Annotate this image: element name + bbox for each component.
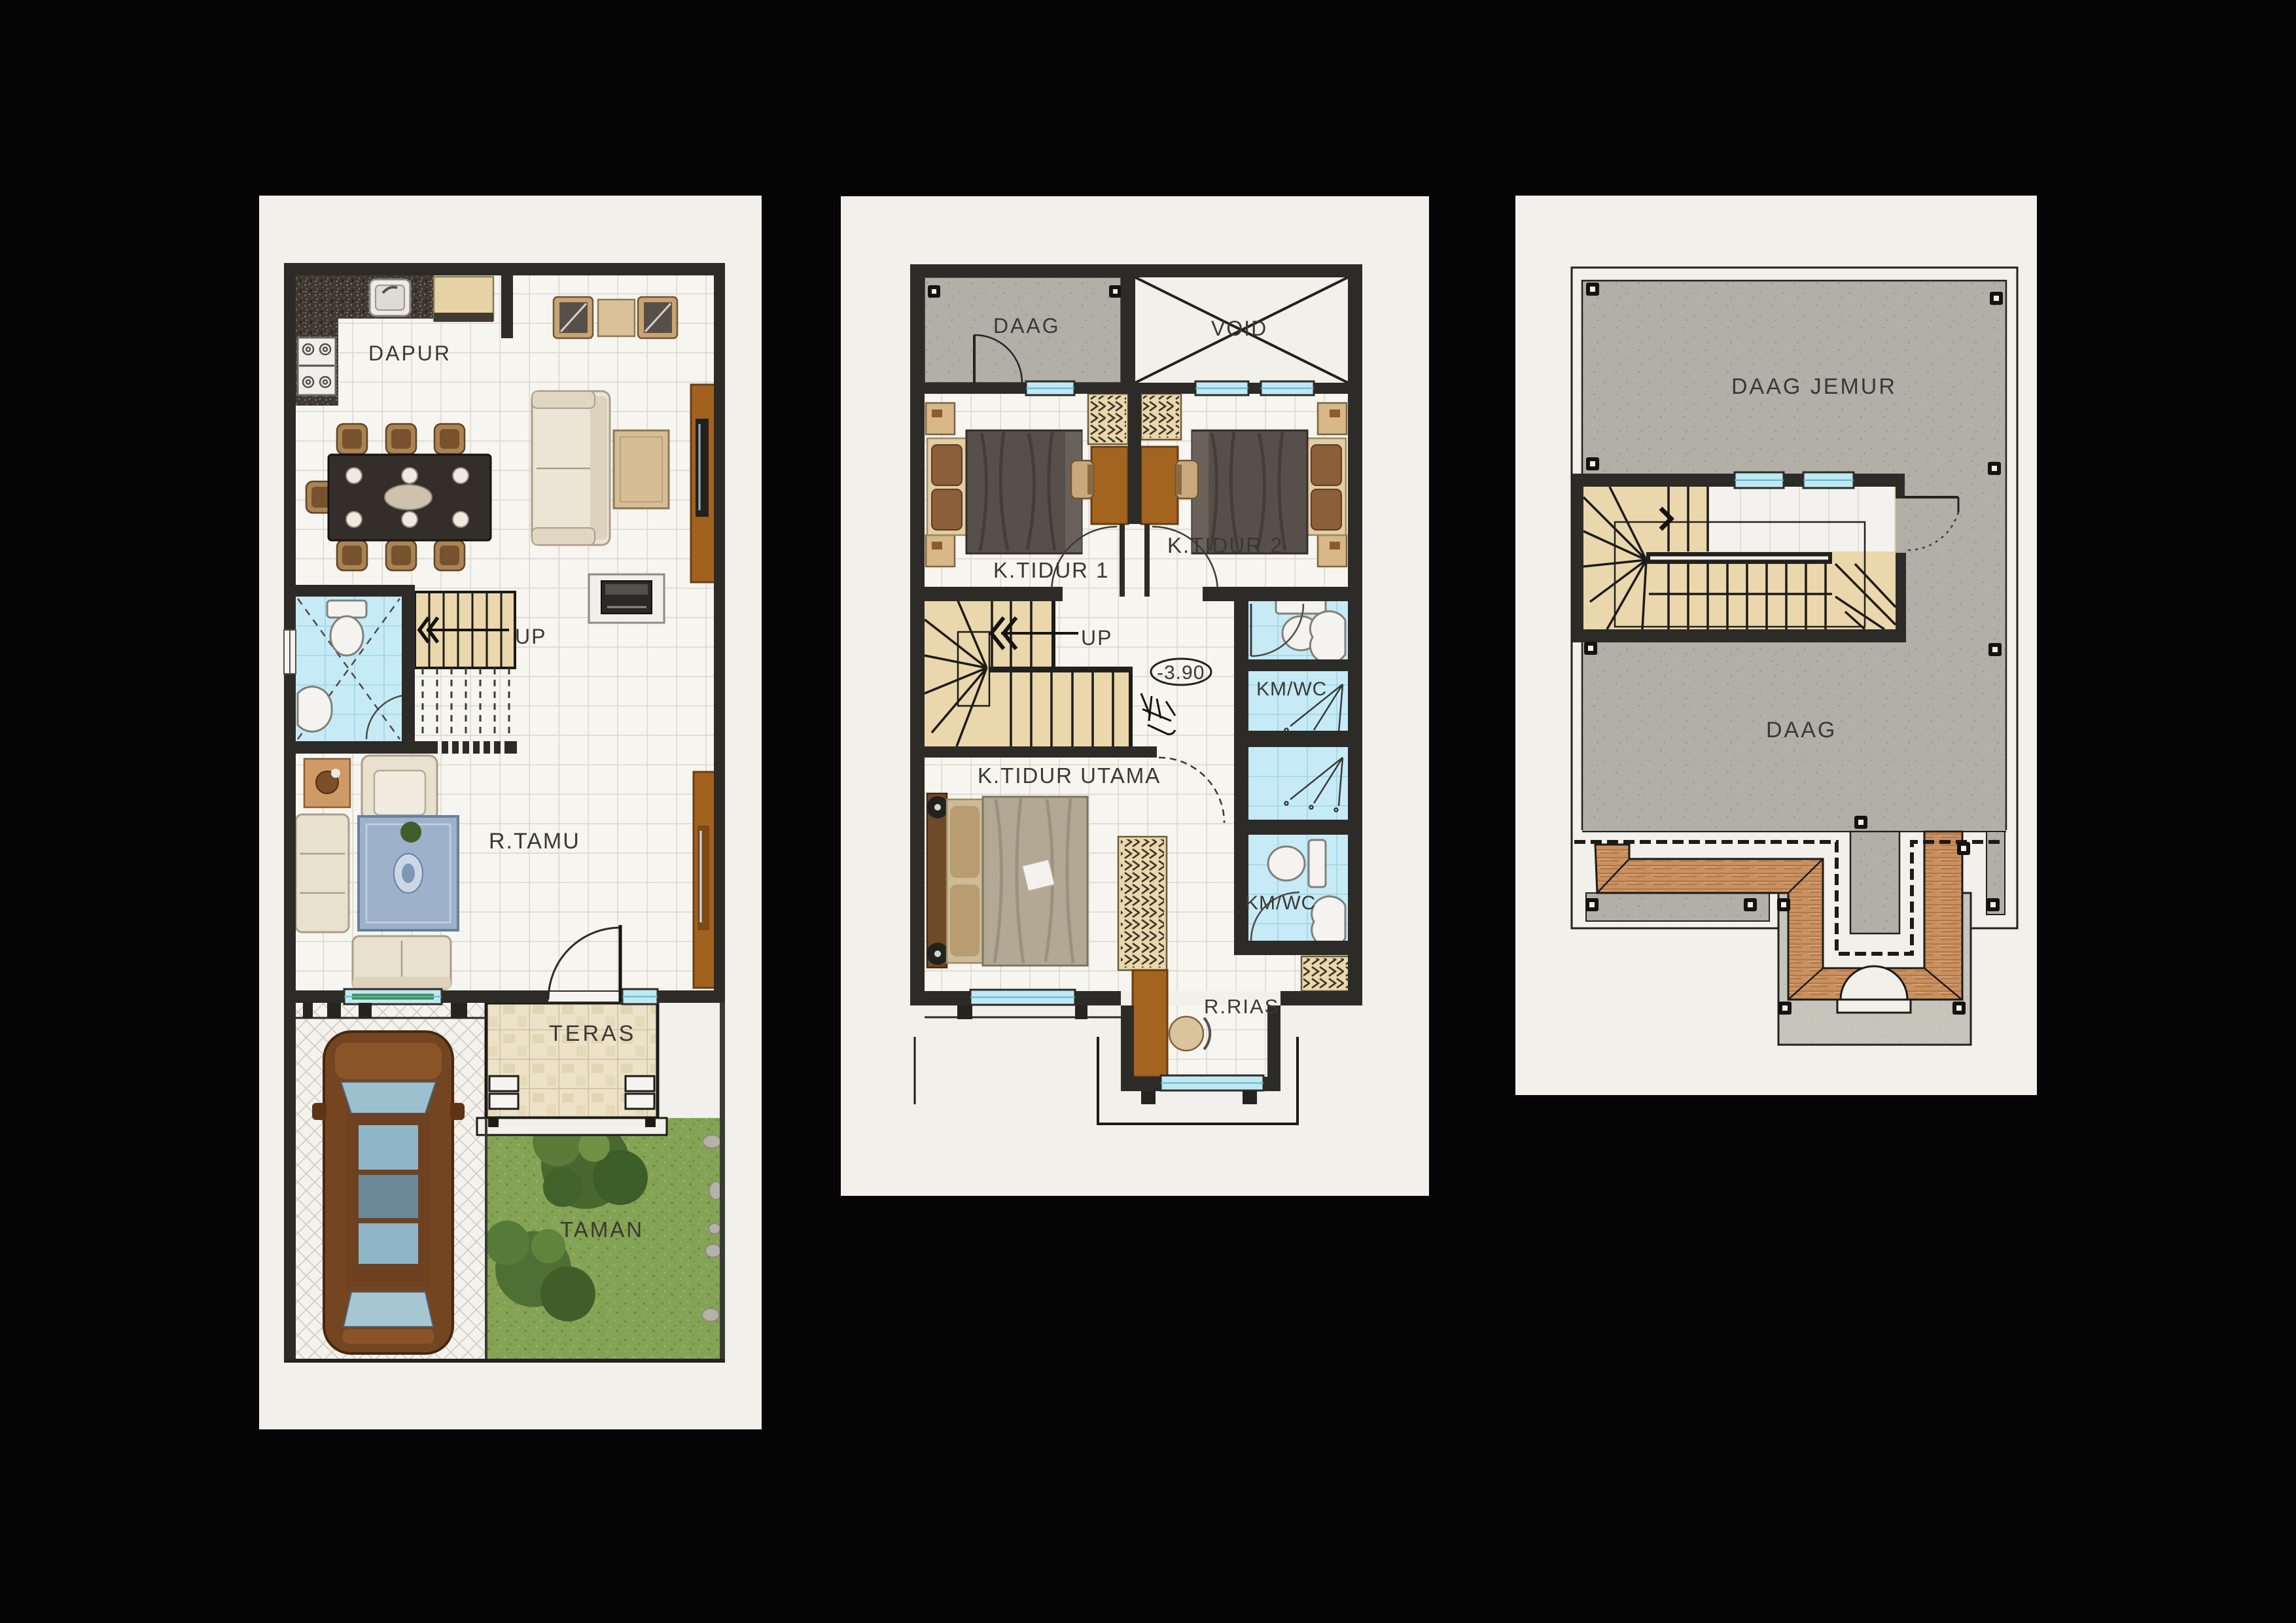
svg-text:DAAG JEMUR: DAAG JEMUR xyxy=(1731,374,1897,399)
svg-text:K.TIDUR UTAMA: K.TIDUR UTAMA xyxy=(978,763,1161,788)
svg-text:K.TIDUR 2: K.TIDUR 2 xyxy=(1167,533,1284,557)
svg-text:DAPUR: DAPUR xyxy=(368,341,451,365)
svg-text:TAMAN: TAMAN xyxy=(560,1217,644,1242)
svg-text:KM/WC: KM/WC xyxy=(1245,892,1316,914)
svg-text:R.TAMU: R.TAMU xyxy=(489,829,580,854)
svg-text:-3.90: -3.90 xyxy=(1157,662,1205,684)
svg-text:DAAG: DAAG xyxy=(1766,718,1837,742)
svg-text:UP: UP xyxy=(1081,626,1112,650)
svg-text:TERAS: TERAS xyxy=(549,1021,636,1046)
svg-text:R.RIAS: R.RIAS xyxy=(1204,995,1279,1018)
svg-text:VOID: VOID xyxy=(1211,317,1267,340)
svg-text:K.TIDUR 1: K.TIDUR 1 xyxy=(993,558,1110,582)
svg-text:DAAG: DAAG xyxy=(993,314,1061,338)
svg-text:UP: UP xyxy=(515,625,546,648)
svg-text:KM/WC: KM/WC xyxy=(1256,678,1327,700)
